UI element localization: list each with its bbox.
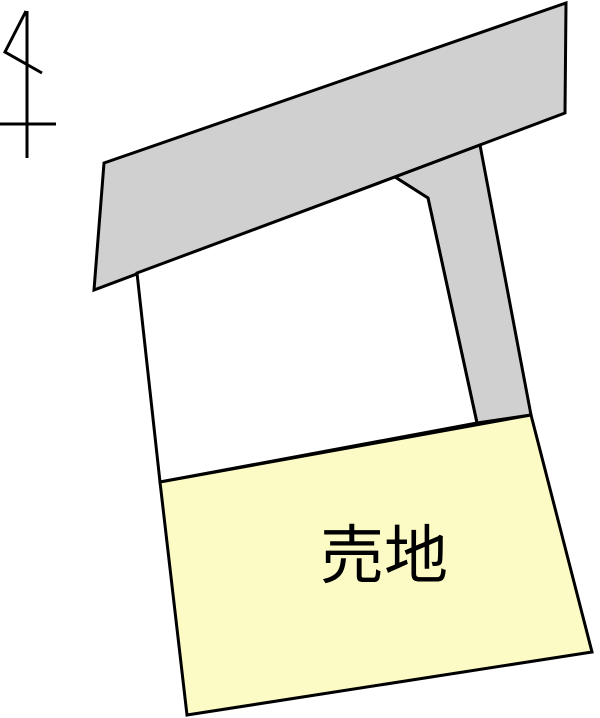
site-plan-drawing: 売地: [0, 0, 600, 718]
north-arrow-icon: [0, 11, 56, 158]
sale-land-label: 売地: [320, 520, 448, 592]
site-plan: 売地: [0, 0, 600, 718]
